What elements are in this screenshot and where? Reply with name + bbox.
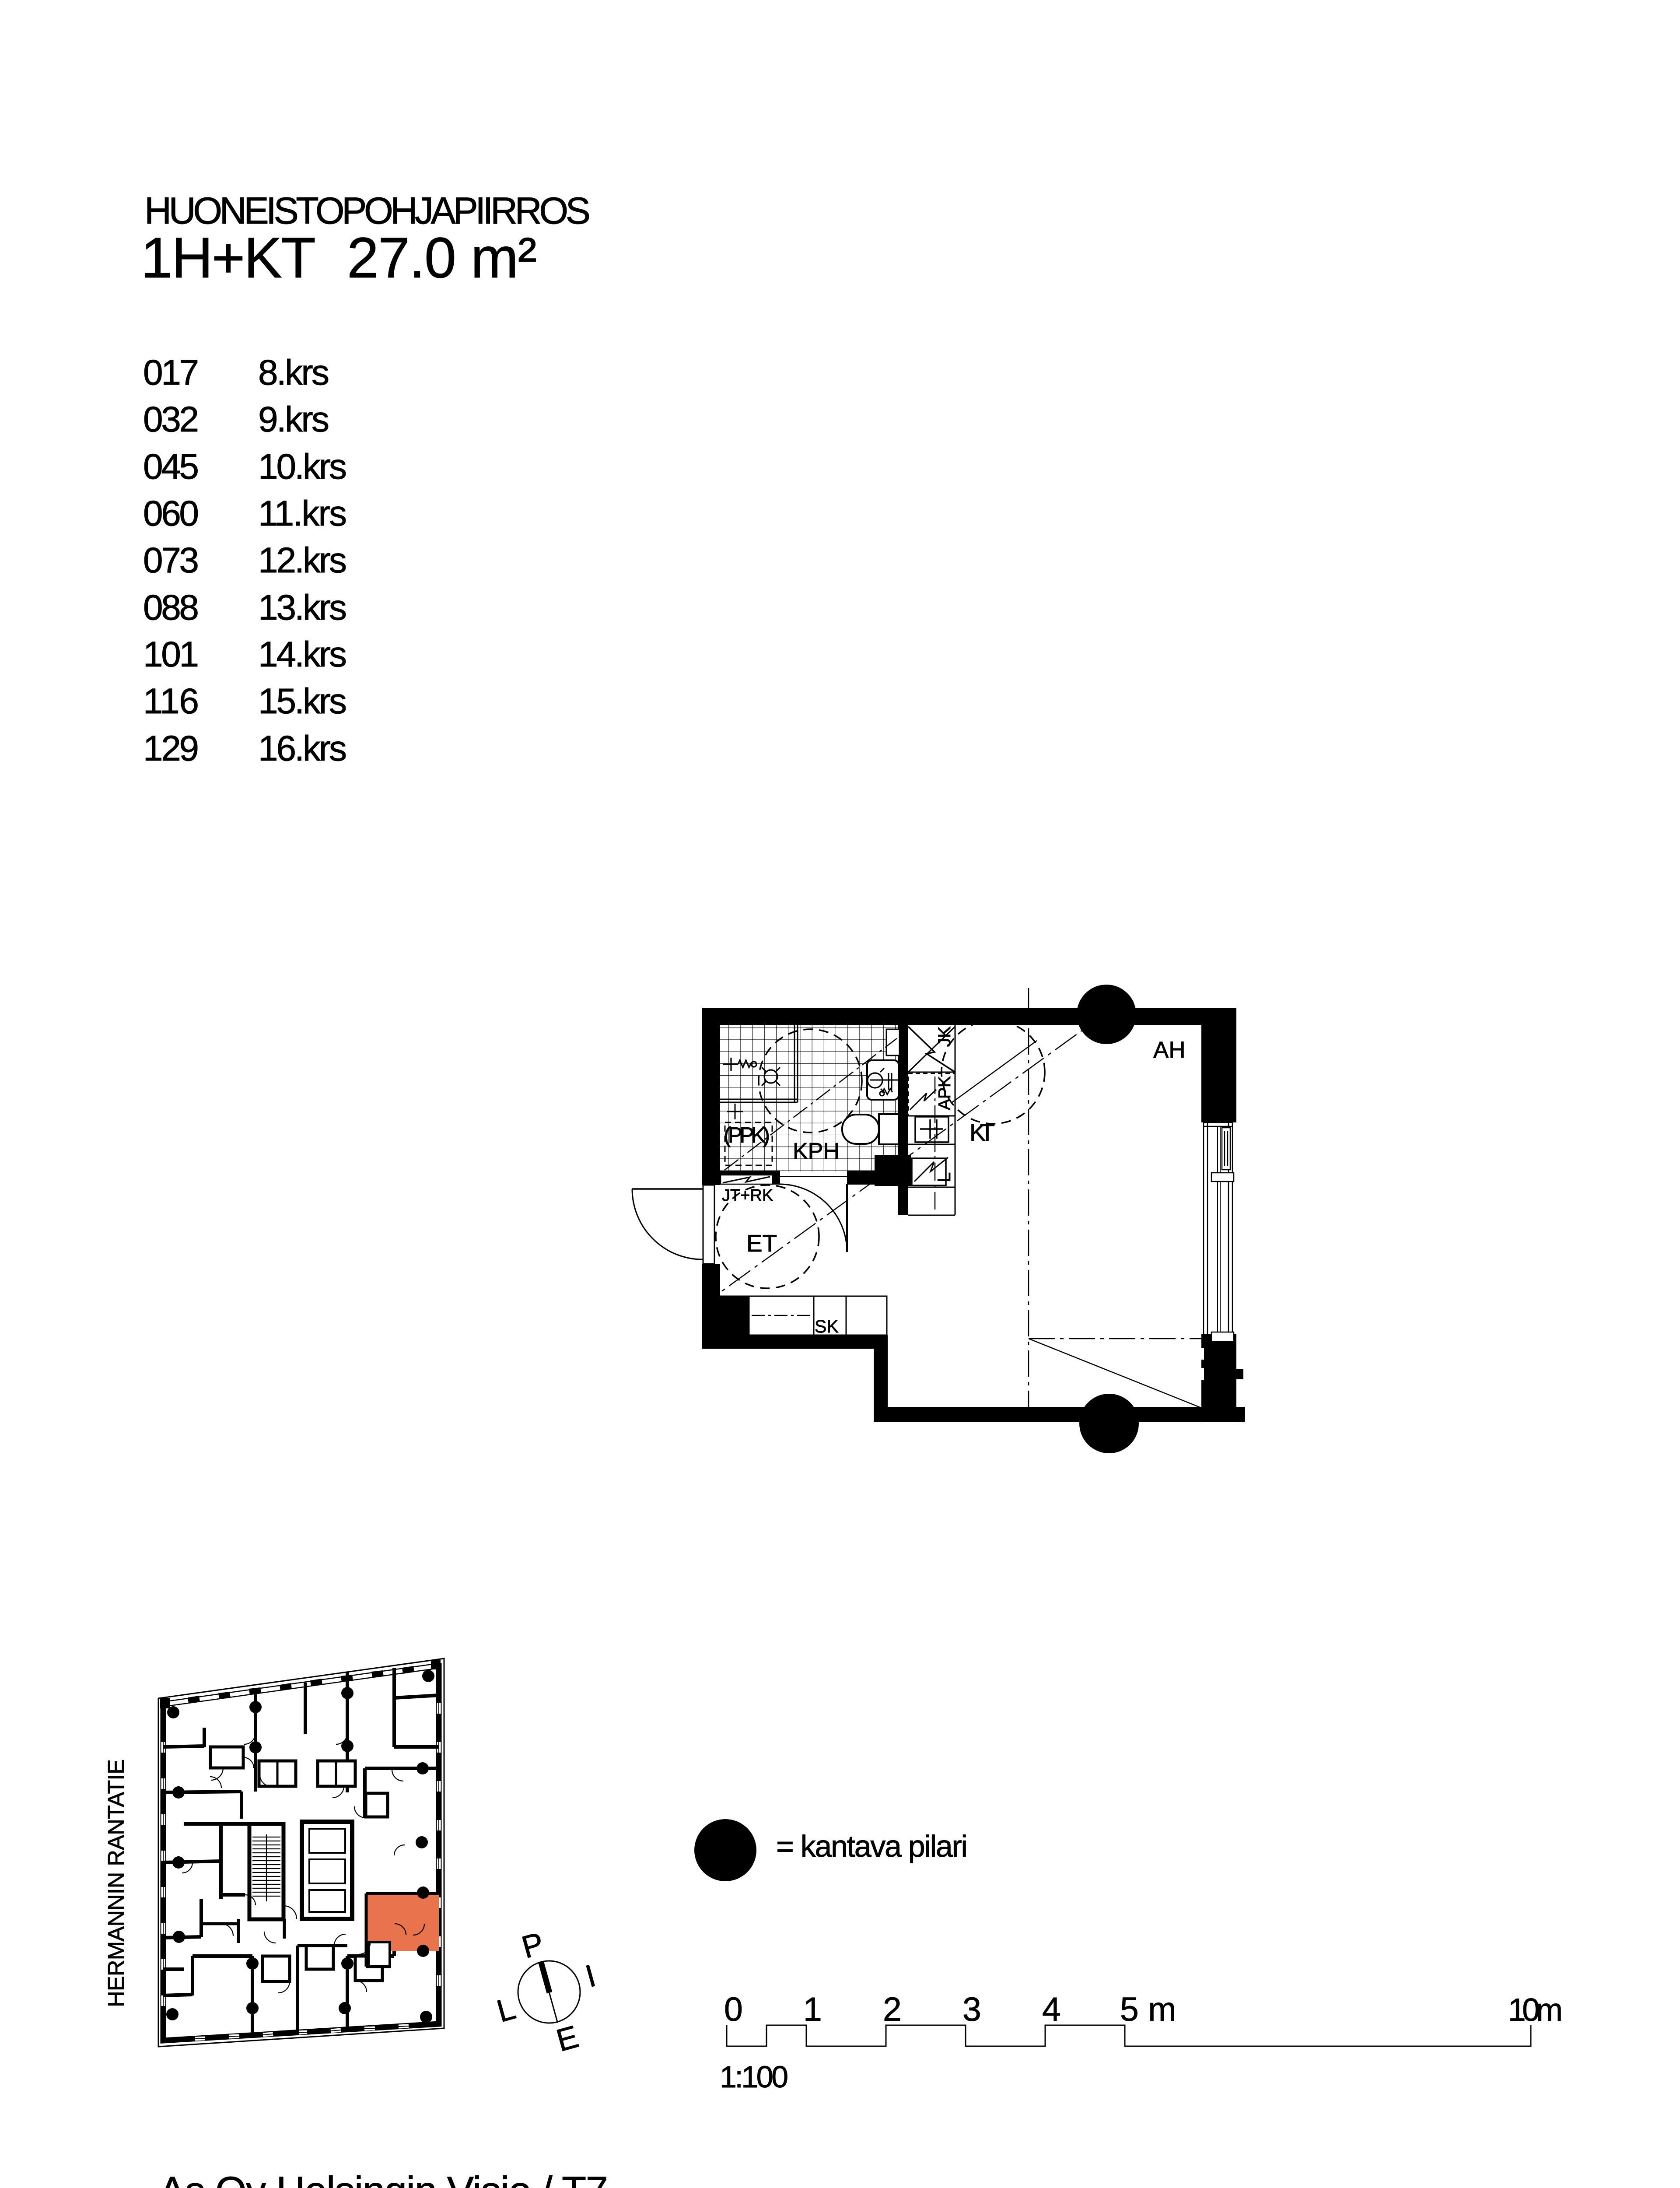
svg-text:9.krs: 9.krs	[258, 400, 329, 439]
svg-text:L: L	[934, 1172, 954, 1182]
svg-text:1H+KT: 1H+KT	[141, 225, 316, 290]
svg-text:As Oy Helsingin Visio / T7: As Oy Helsingin Visio / T7	[159, 2169, 608, 2188]
svg-text:= kantava pilari: = kantava pilari	[776, 1829, 968, 1863]
svg-text:073: 073	[143, 540, 199, 580]
svg-text:13.krs: 13.krs	[258, 588, 347, 628]
svg-text:060: 060	[143, 494, 199, 533]
svg-text:10.krs: 10.krs	[258, 447, 347, 487]
svg-text:4: 4	[1042, 1991, 1061, 2028]
svg-text:017: 017	[143, 353, 199, 393]
svg-text:I: I	[582, 1958, 600, 1994]
svg-text:JK: JK	[935, 1026, 954, 1047]
svg-text:HERMANNIN RANTATIE: HERMANNIN RANTATIE	[104, 1759, 129, 2007]
svg-text:15.krs: 15.krs	[258, 681, 347, 721]
svg-text:5 m: 5 m	[1120, 1991, 1176, 2028]
svg-text:P: P	[518, 1926, 548, 1965]
svg-text:088: 088	[143, 588, 199, 628]
svg-text:1:100: 1:100	[720, 2060, 788, 2094]
svg-text:16.krs: 16.krs	[258, 729, 347, 768]
svg-text:1: 1	[803, 1991, 822, 2028]
svg-text:12.krs: 12.krs	[258, 540, 347, 580]
svg-text:2: 2	[883, 1991, 902, 2028]
svg-text:045: 045	[143, 447, 199, 487]
svg-text:KPH: KPH	[793, 1139, 840, 1164]
svg-text:8.krs: 8.krs	[258, 353, 329, 393]
svg-text:AH: AH	[1153, 1037, 1186, 1063]
svg-text:0: 0	[724, 1991, 743, 2028]
svg-text:KT: KT	[969, 1119, 995, 1146]
svg-text:SK: SK	[815, 1316, 839, 1336]
svg-text:032: 032	[143, 400, 199, 439]
svg-text:3: 3	[962, 1991, 981, 2028]
svg-text:10m: 10m	[1508, 1992, 1563, 2028]
svg-text:L: L	[493, 1991, 519, 2029]
svg-text:ET: ET	[746, 1230, 777, 1257]
svg-text:101: 101	[143, 635, 199, 674]
svg-text:11.krs: 11.krs	[258, 494, 347, 533]
svg-text:14.krs: 14.krs	[258, 635, 347, 674]
svg-text:E: E	[553, 2019, 582, 2058]
svg-text:129: 129	[143, 729, 199, 768]
svg-text:116: 116	[143, 681, 199, 721]
svg-text:27.0 m²: 27.0 m²	[347, 225, 537, 290]
svg-text:APK: APK	[935, 1076, 954, 1110]
svg-text:(PPK): (PPK)	[724, 1123, 770, 1147]
